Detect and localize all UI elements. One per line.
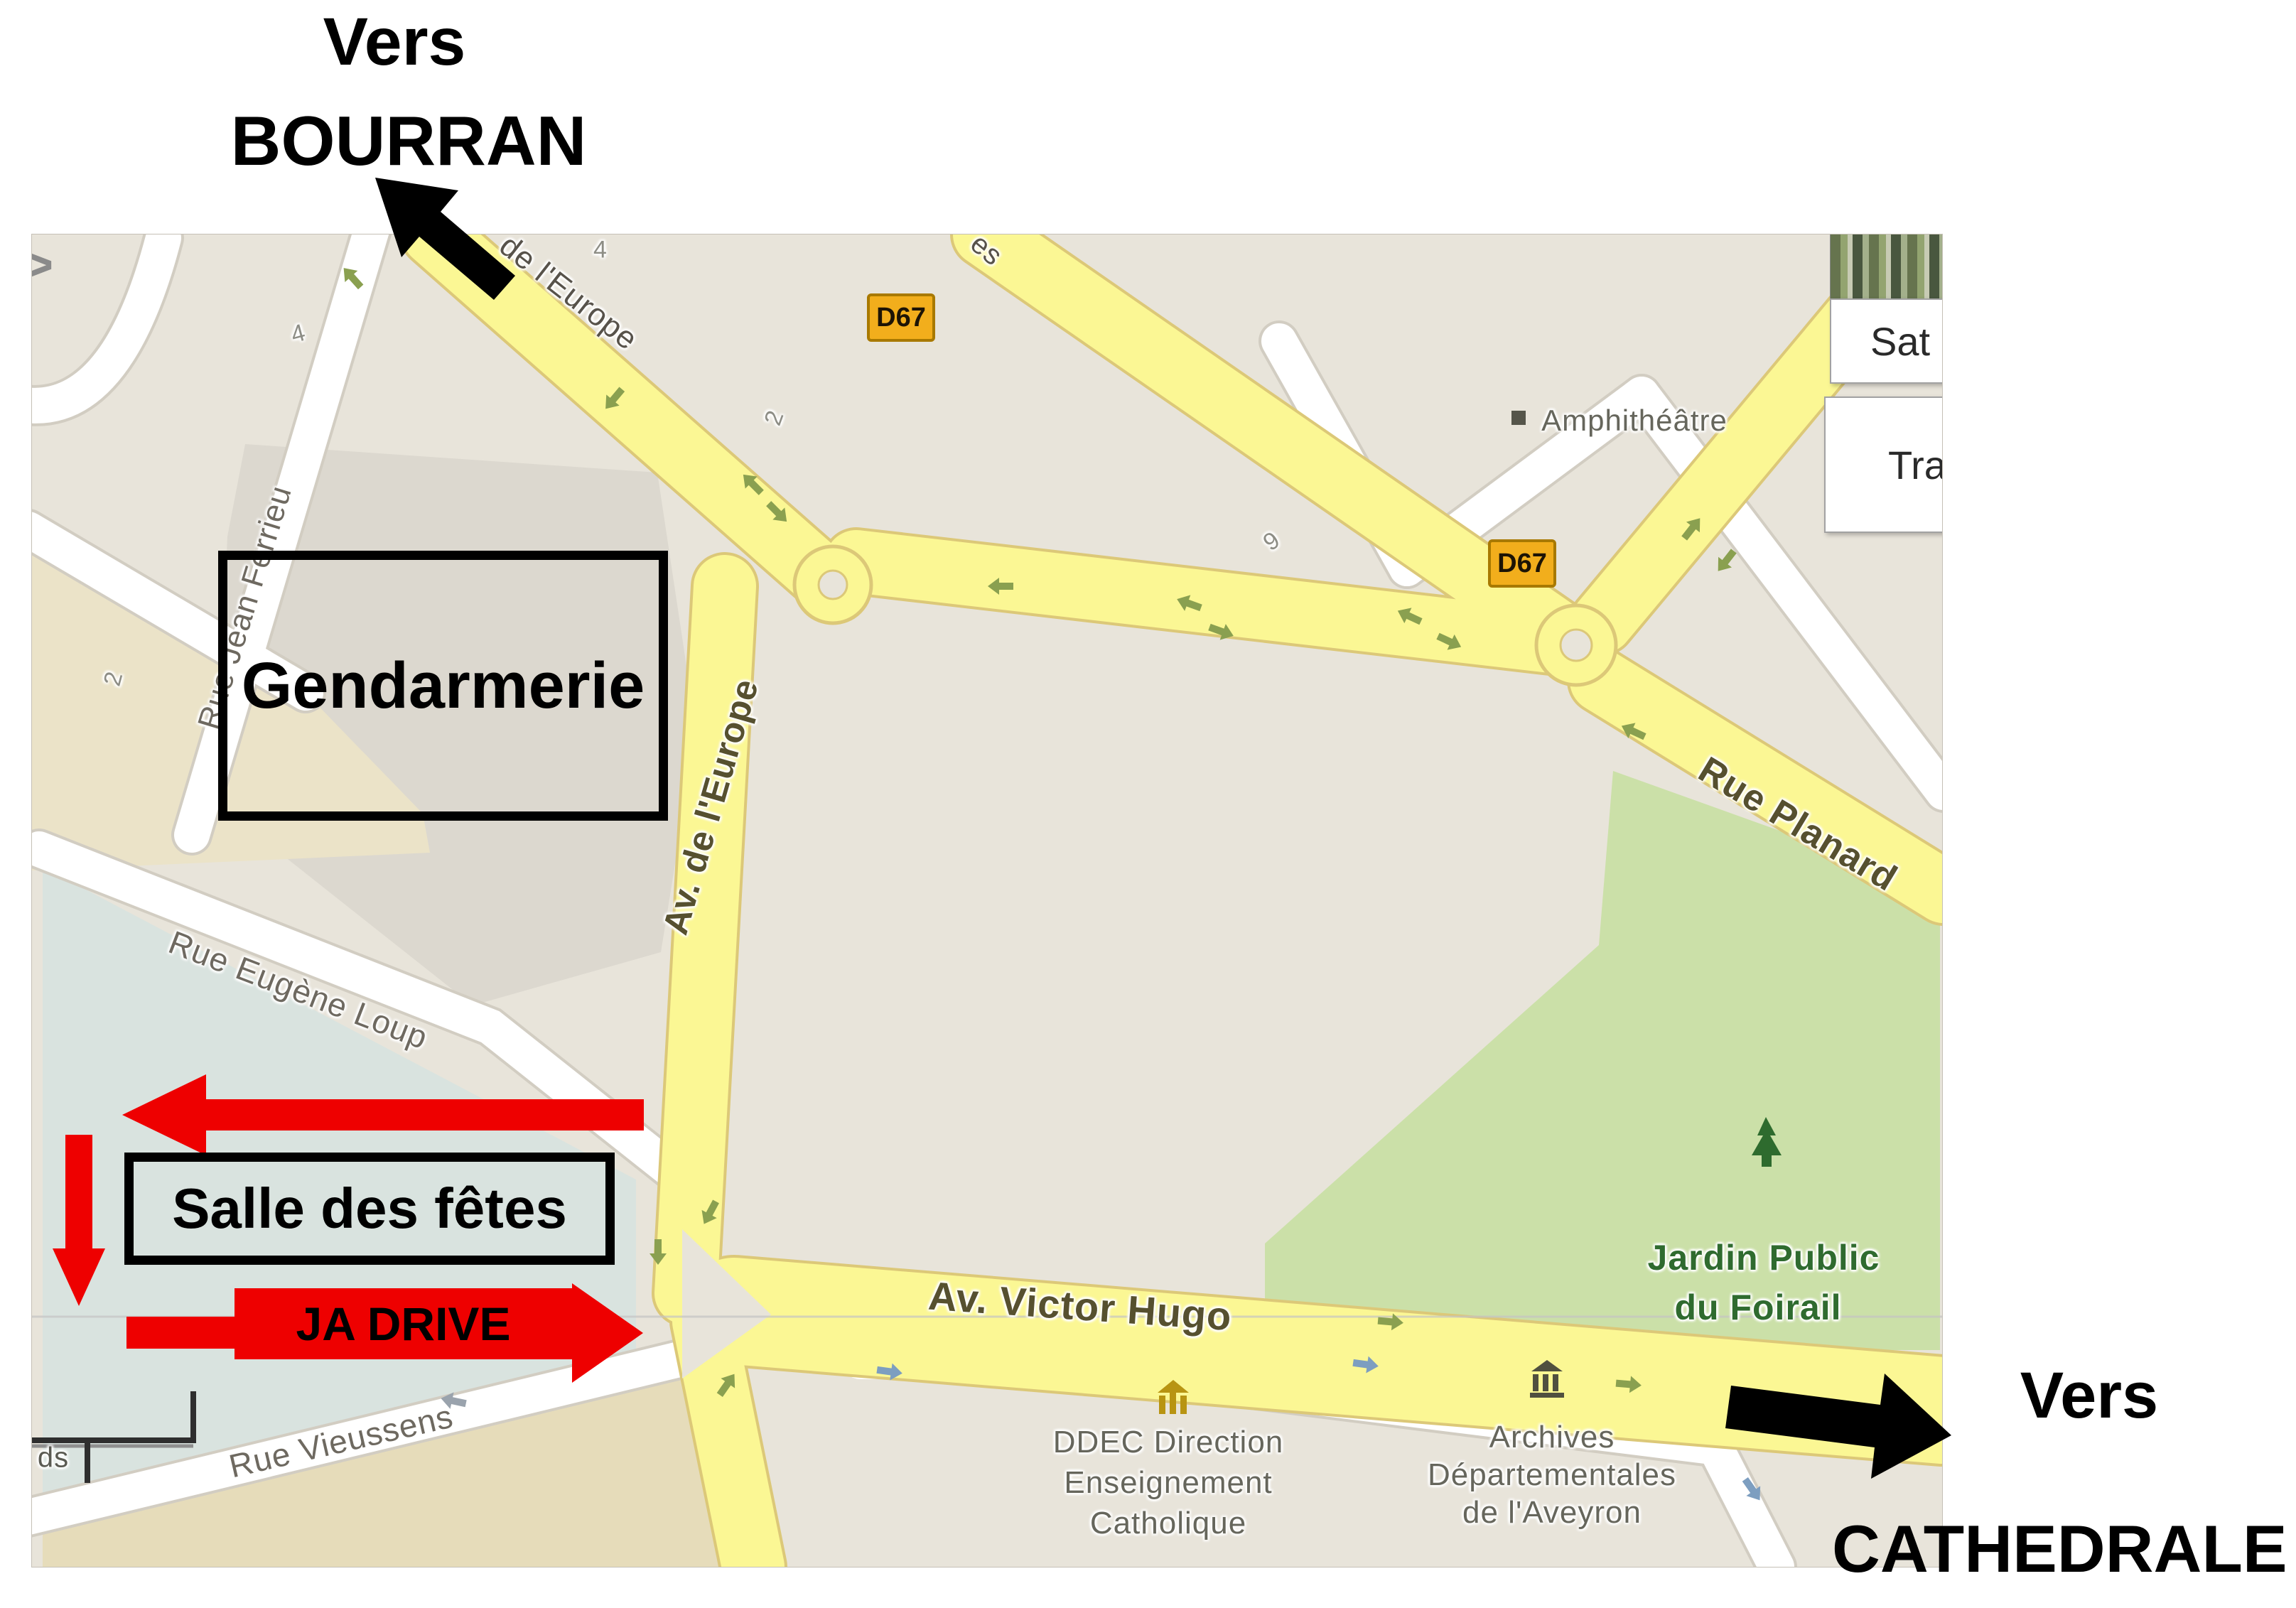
poi-amphitheatre: Amphithéâtre [1541, 404, 1728, 438]
bourran-direction-line2: BOURRAN [206, 101, 611, 181]
poi-ddec-line1: DDEC Direction [1053, 1425, 1284, 1460]
traffic-button-label: Tra [1888, 442, 1942, 488]
poi-jardin-line1: Jardin Public [1648, 1237, 1880, 1278]
poi-jardin-line2: du Foirail [1675, 1287, 1842, 1328]
amphitheatre-marker [1511, 411, 1526, 425]
cathedrale-direction-line2: CATHEDRALE [1832, 1511, 2296, 1587]
roundabout-west [794, 546, 871, 623]
house-number: 4 [593, 237, 608, 264]
poi-ddec-line2: Enseignement [1064, 1465, 1272, 1501]
road-av-europe-vert [686, 586, 725, 1293]
pan-chevron-icon[interactable]: > [32, 236, 53, 294]
road-badge-d67-west: D67 [867, 293, 935, 342]
satellite-button-label: Sat [1870, 318, 1930, 365]
satellite-thumbnail[interactable] [1830, 234, 1942, 300]
ja-drive-label: JA DRIVE [296, 1297, 511, 1351]
poi-archives-line2: Départementales [1428, 1457, 1676, 1493]
road-badge-d67-east: D67 [1488, 539, 1556, 588]
map-canvas[interactable]: de l'Europe Av. de l'Europe Rue Jean Fer… [32, 234, 1942, 1567]
cathedrale-direction-line1: Vers [1947, 1359, 2231, 1433]
ja-drive-box: JA DRIVE [235, 1288, 572, 1359]
roundabout-east [1536, 605, 1616, 685]
poi-ddec-line3: Catholique [1090, 1506, 1246, 1541]
satellite-button[interactable]: Sat [1830, 298, 1942, 384]
flyer-page: de l'Europe Av. de l'Europe Rue Jean Fer… [0, 0, 2296, 1608]
poi-archives-line1: Archives [1489, 1420, 1615, 1455]
salle-des-fetes-label: Salle des fêtes [172, 1176, 567, 1241]
salle-des-fetes-box: Salle des fêtes [124, 1153, 615, 1265]
poi-archives-line3: de l'Aveyron [1462, 1495, 1642, 1531]
bourran-direction-line1: Vers [235, 4, 554, 81]
gendarmerie-label: Gendarmerie [242, 649, 645, 723]
gendarmerie-box: Gendarmerie [218, 551, 668, 821]
attribution-fragment: ds [38, 1442, 69, 1474]
traffic-button[interactable]: Tra [1824, 396, 1942, 533]
